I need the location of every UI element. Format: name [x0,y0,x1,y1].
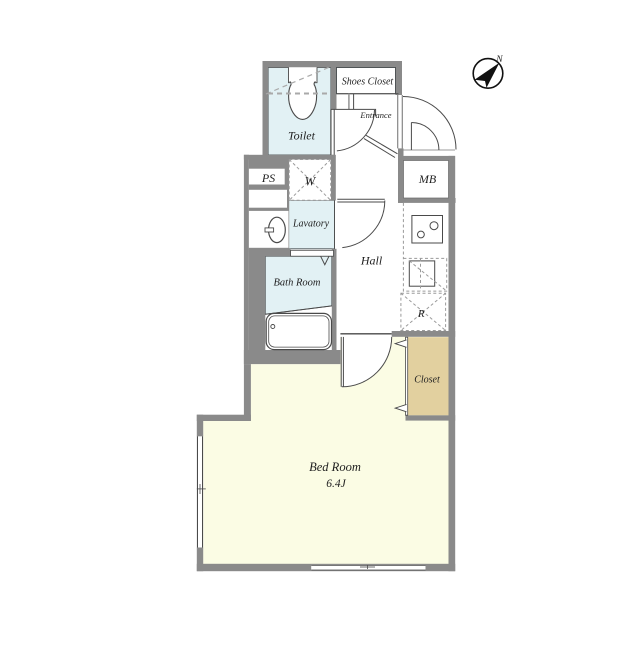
svg-text:N: N [495,55,503,65]
svg-text:Closet: Closet [414,375,440,386]
svg-text:Lavatory: Lavatory [292,219,330,230]
svg-text:PS: PS [261,171,275,185]
svg-text:Bath Room: Bath Room [274,278,321,289]
svg-text:MB: MB [418,172,437,186]
svg-text:Entrance: Entrance [359,110,391,120]
svg-text:R: R [417,308,425,320]
svg-text:Hall: Hall [360,254,383,268]
svg-text:W: W [305,175,317,189]
svg-text:Toilet: Toilet [288,129,316,143]
svg-text:Bed Room: Bed Room [309,460,361,474]
svg-text:6.4J: 6.4J [326,478,346,490]
svg-text:Shoes Closet: Shoes Closet [342,77,394,88]
